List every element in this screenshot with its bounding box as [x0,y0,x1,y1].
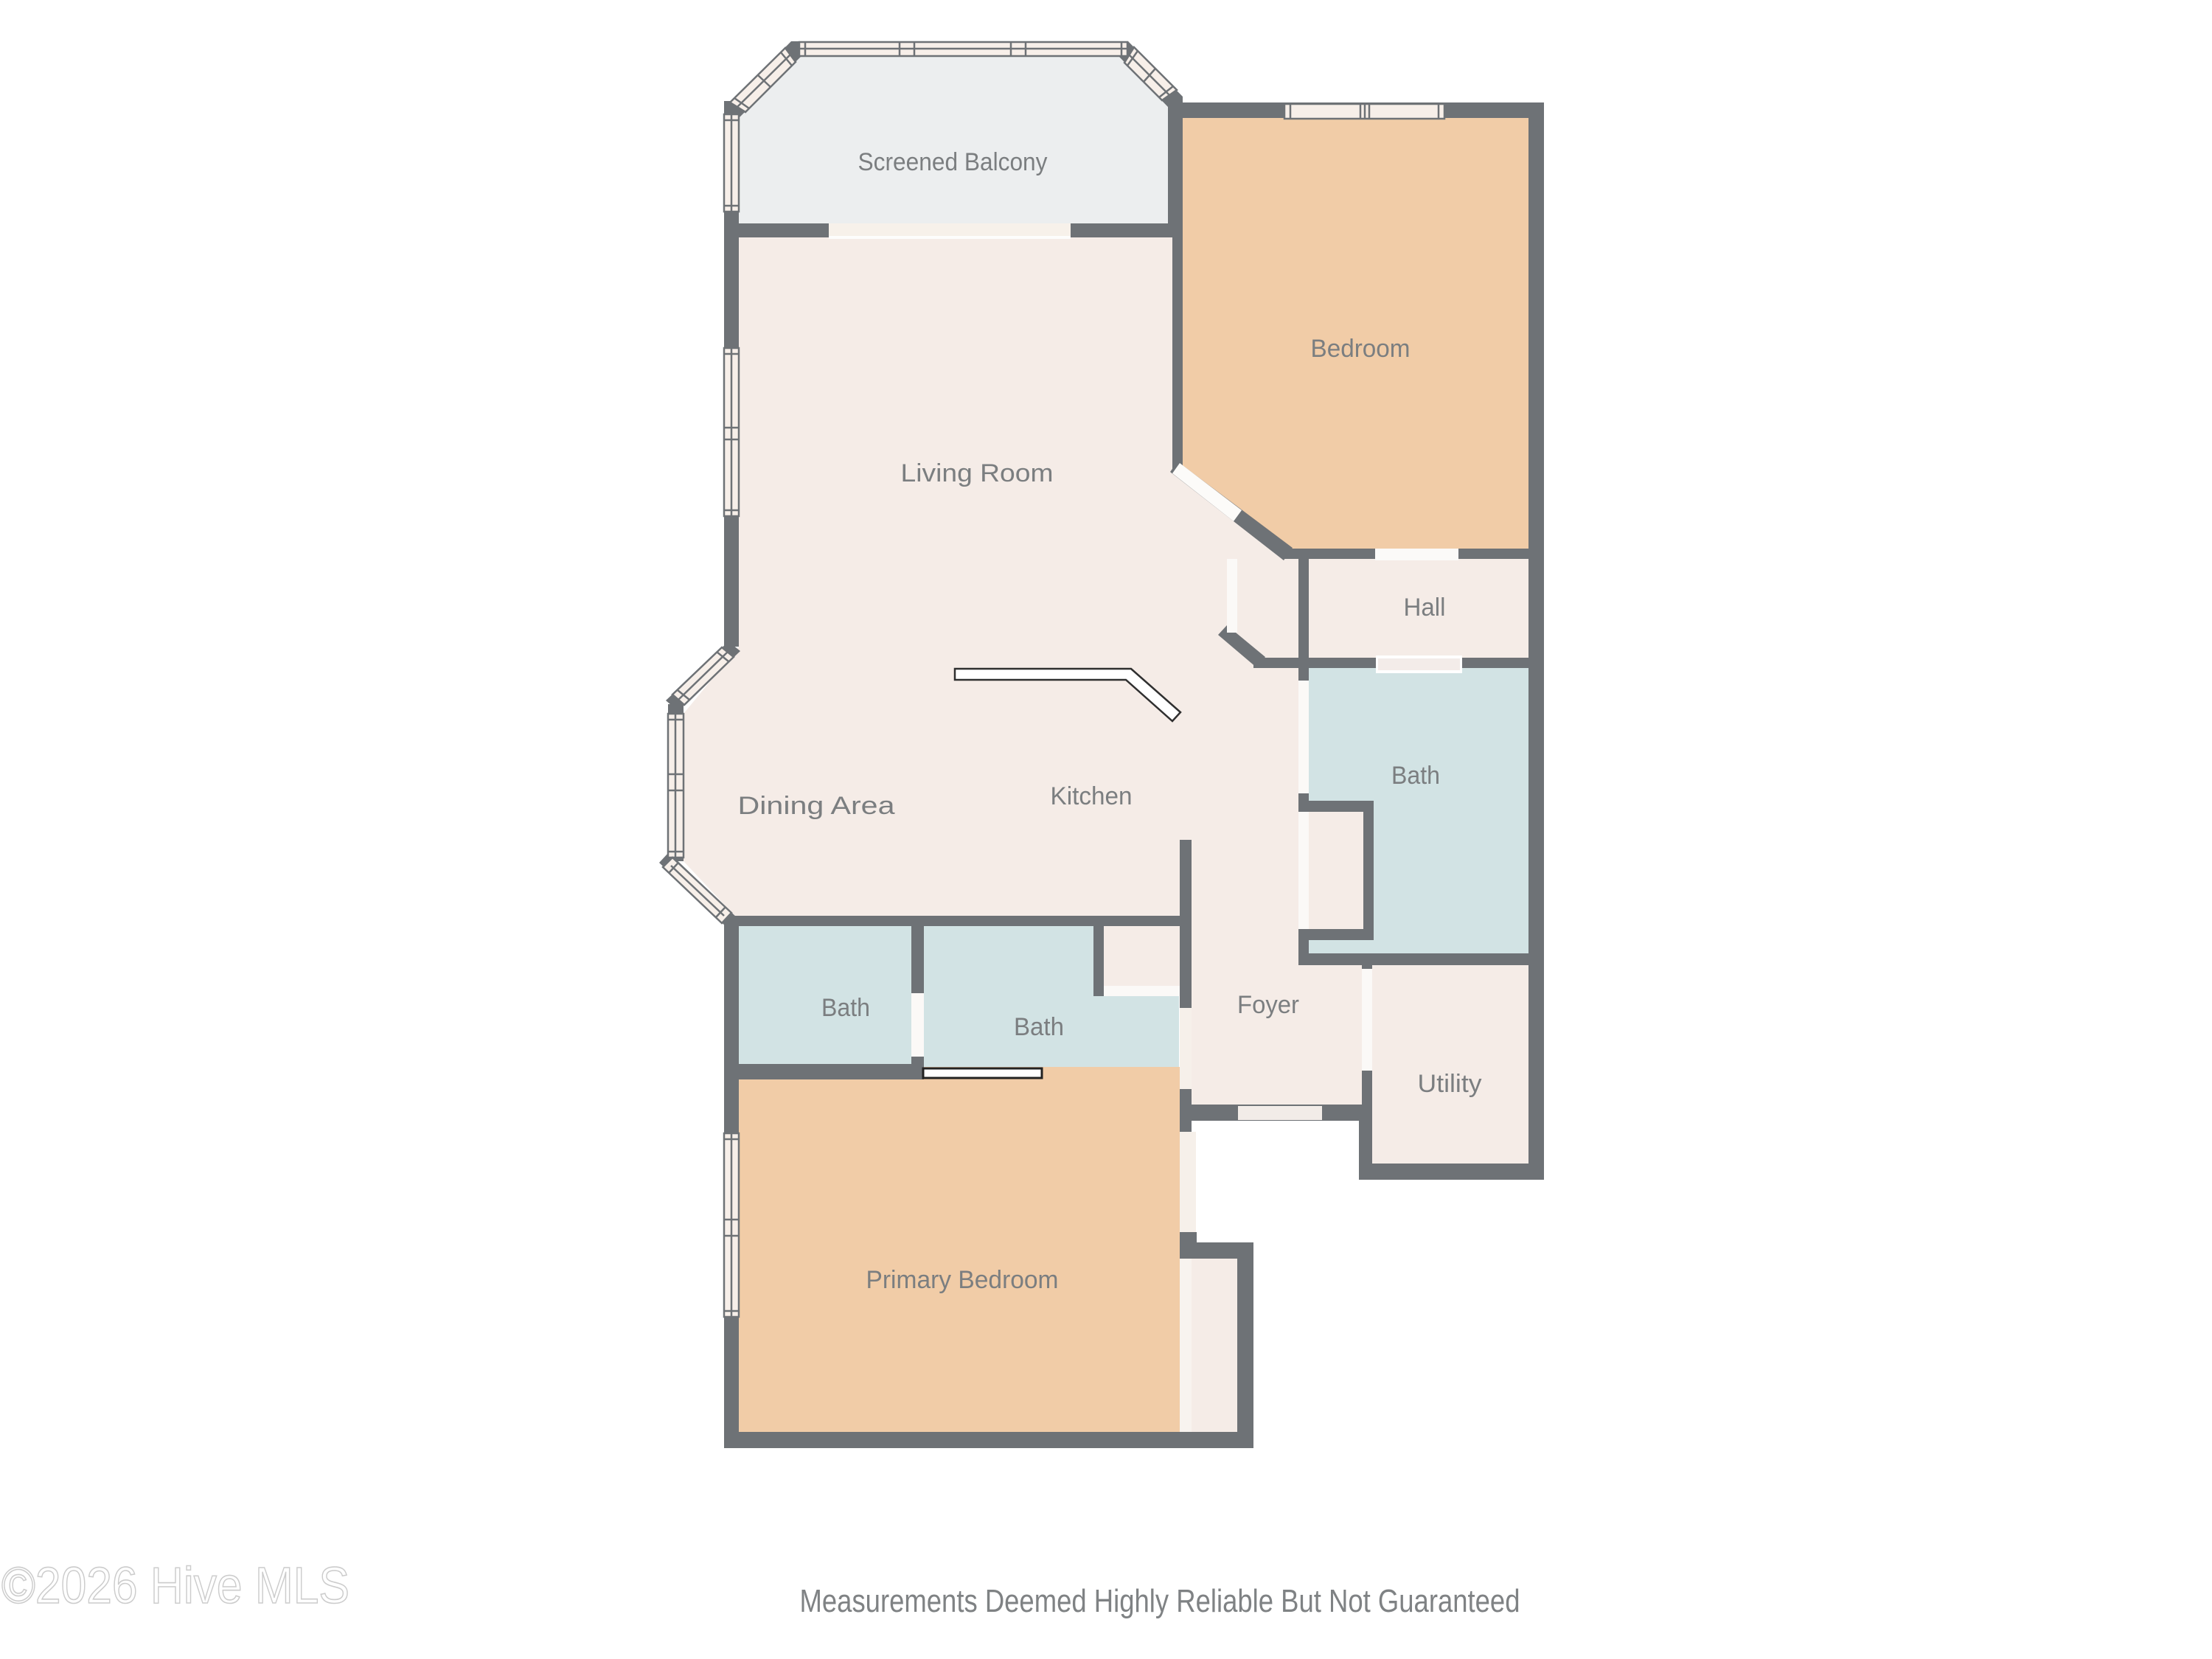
svg-text:Kitchen: Kitchen [1051,782,1133,810]
svg-text:Measurements Deemed Highly Rel: Measurements Deemed Highly Reliable But … [800,1583,1520,1619]
svg-text:Foyer: Foyer [1237,991,1299,1019]
svg-text:Primary Bedroom: Primary Bedroom [866,1266,1059,1294]
svg-text:Bath: Bath [1014,1013,1064,1041]
svg-text:©2026 Hive MLS: ©2026 Hive MLS [1,1557,349,1614]
svg-text:Bedroom: Bedroom [1311,335,1411,363]
svg-text:Dining Area: Dining Area [738,792,895,820]
svg-text:Living Room: Living Room [901,459,1054,487]
svg-text:Hall: Hall [1404,594,1446,622]
svg-text:Bath: Bath [821,994,870,1022]
svg-text:Screened Balcony: Screened Balcony [858,148,1048,176]
svg-text:Bath: Bath [1391,762,1440,790]
svg-text:Utility: Utility [1418,1070,1482,1098]
